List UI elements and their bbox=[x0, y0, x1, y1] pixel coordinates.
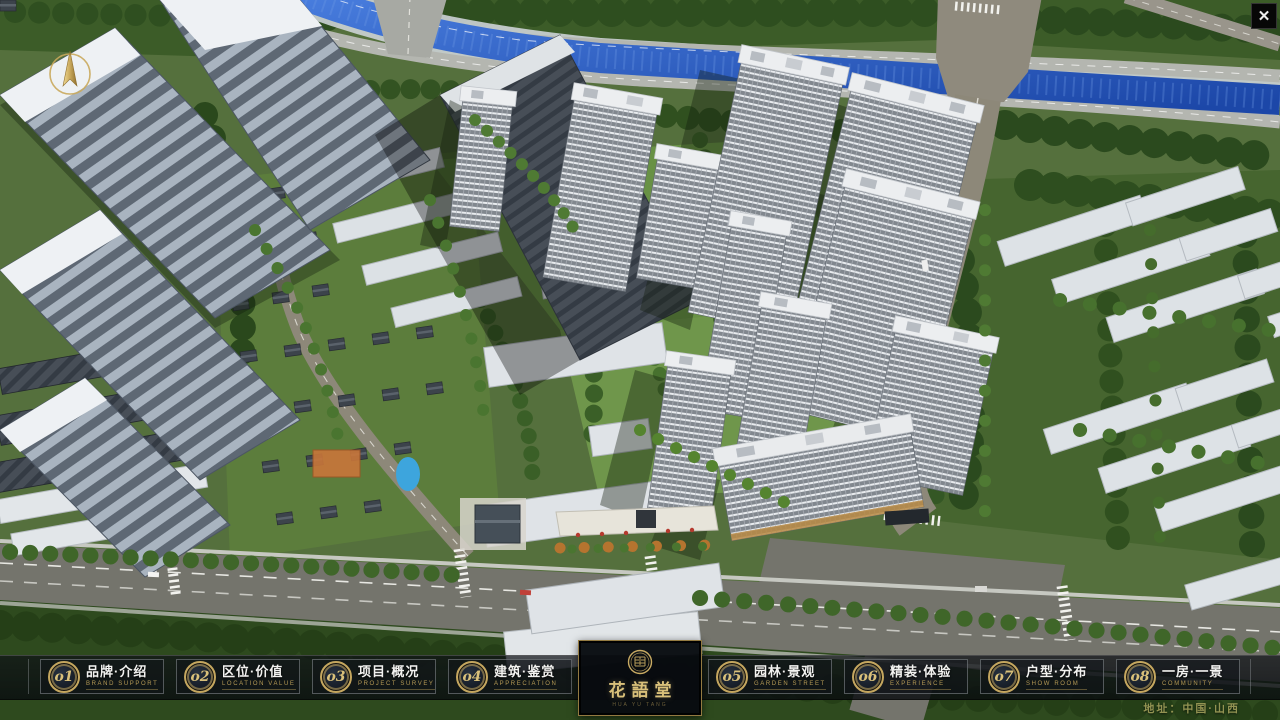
menu-number-badge: o1 bbox=[48, 661, 80, 693]
menu-item-brand[interactable]: o1 品牌·介绍 BRAND SUPPORT bbox=[40, 659, 164, 694]
menu-number-badge: o5 bbox=[716, 661, 748, 693]
sales-presentation-window: ✕ o1 品牌·介绍 BRAND SUPPORT o2 区位·价值 LOCATI… bbox=[0, 0, 1280, 720]
menu-en-label: SHOW ROOM bbox=[1026, 680, 1087, 690]
menu-zh-label: 建筑·鉴赏 bbox=[494, 664, 557, 679]
menu-number-badge: o7 bbox=[988, 661, 1020, 693]
menu-zh-label: 园林·景观 bbox=[754, 664, 826, 679]
menu-en-label: PROJECT SURVEY bbox=[358, 680, 435, 690]
menu-item-interior[interactable]: o6 精装·体验 EXPERIENCE bbox=[844, 659, 968, 694]
seal-icon bbox=[627, 649, 653, 675]
menu-zh-label: 项目·概况 bbox=[358, 664, 435, 679]
bar-divider-left bbox=[28, 659, 29, 694]
menu-item-project[interactable]: o3 项目·概况 PROJECT SURVEY bbox=[312, 659, 436, 694]
menu-zh-label: 品牌·介绍 bbox=[86, 664, 158, 679]
bar-divider-right bbox=[1250, 659, 1251, 694]
menu-en-label: GARDEN STREET bbox=[754, 680, 826, 690]
project-address: 地址：中国·山西 bbox=[1143, 700, 1240, 716]
menu-number-badge: o2 bbox=[184, 661, 216, 693]
menu-en-label: COMMUNITY bbox=[1162, 680, 1223, 690]
logo-subtitle: HUA YU TANG bbox=[612, 702, 667, 708]
menu-zh-label: 区位·价值 bbox=[222, 664, 296, 679]
menu-zh-label: 户型·分布 bbox=[1026, 664, 1087, 679]
close-button[interactable]: ✕ bbox=[1251, 3, 1277, 29]
menu-number-badge: o4 bbox=[456, 661, 488, 693]
menu-item-floorplan[interactable]: o7 户型·分布 SHOW ROOM bbox=[980, 659, 1104, 694]
bottom-nav-bar: o1 品牌·介绍 BRAND SUPPORT o2 区位·价值 LOCATION… bbox=[0, 655, 1280, 700]
menu-item-rooms[interactable]: o8 一房·一景 COMMUNITY bbox=[1116, 659, 1240, 694]
masterplan-3d-view[interactable] bbox=[0, 0, 1280, 720]
close-icon: ✕ bbox=[1258, 7, 1271, 25]
menu-number-badge: o6 bbox=[852, 661, 884, 693]
menu-zh-label: 精装·体验 bbox=[890, 664, 951, 679]
logo-home-button[interactable]: 花語堂 HUA YU TANG bbox=[578, 640, 702, 716]
menu-item-garden[interactable]: o5 园林·景观 GARDEN STREET bbox=[708, 659, 832, 694]
menu-item-architecture[interactable]: o4 建筑·鉴赏 APPRECIATION bbox=[448, 659, 572, 694]
logo-name: 花語堂 bbox=[609, 676, 678, 701]
menu-en-label: BRAND SUPPORT bbox=[86, 680, 158, 690]
menu-en-label: LOCATION VALUE bbox=[222, 680, 296, 690]
menu-zh-label: 一房·一景 bbox=[1162, 664, 1223, 679]
menu-number-badge: o3 bbox=[320, 661, 352, 693]
menu-number-badge: o8 bbox=[1124, 661, 1156, 693]
menu-item-location[interactable]: o2 区位·价值 LOCATION VALUE bbox=[176, 659, 300, 694]
menu-en-label: EXPERIENCE bbox=[890, 680, 951, 690]
menu-en-label: APPRECIATION bbox=[494, 680, 557, 690]
